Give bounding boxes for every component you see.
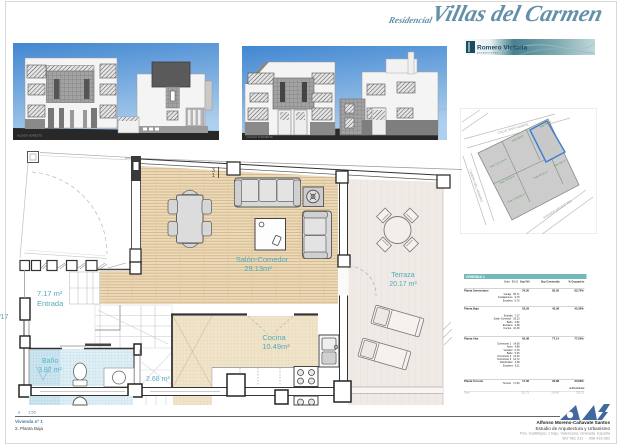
svg-text:20.17 m²: 20.17 m²: [389, 281, 417, 288]
svg-text:Salón-Comedor: Salón-Comedor: [236, 255, 289, 264]
svg-text:Cocina: Cocina: [262, 333, 286, 342]
svg-text:10.49m²: 10.49m²: [262, 342, 290, 351]
svg-text:ALZADO SUROESTE: ALZADO SUROESTE: [246, 135, 273, 139]
svg-text:7.17 m²: 7.17 m²: [37, 289, 63, 298]
svg-text:Romero Victoria: Romero Victoria: [477, 45, 527, 52]
svg-text:29.13m²: 29.13m²: [244, 264, 272, 273]
svg-text:Baño: Baño: [42, 358, 58, 365]
svg-text:Entrada: Entrada: [37, 299, 64, 308]
svg-text:Terraza: Terraza: [391, 272, 414, 279]
svg-text:ALZADO NORESTE: ALZADO NORESTE: [17, 134, 42, 138]
svg-text:3.82 m²: 3.82 m²: [38, 367, 62, 374]
svg-text:2.68 m²: 2.68 m²: [146, 376, 170, 383]
svg-text:1: 1: [212, 173, 215, 179]
svg-text:º17: º17: [0, 314, 8, 321]
svg-text:p r o m o c i o n e s: p r o m o c i o n e s: [477, 51, 499, 54]
